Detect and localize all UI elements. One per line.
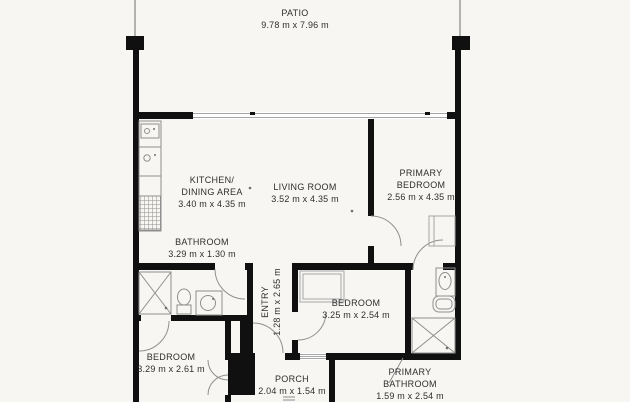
room-label-patio: PATIO 9.78 m x 7.96 m (261, 7, 329, 31)
room-name: BATHROOM (376, 378, 444, 390)
bathtub (433, 296, 455, 312)
room-name: KITCHEN/ (178, 174, 246, 186)
patio-window (193, 112, 447, 119)
room-name: PRIMARY (387, 167, 455, 179)
room-label-primary-bedroom: PRIMARY BEDROOM 2.56 m x 4.35 m (387, 167, 455, 203)
porch-step-marks (283, 397, 295, 400)
vanity-sink (196, 291, 222, 315)
room-name: PATIO (261, 7, 329, 19)
room-label-bedroom-lower: BEDROOM 3.29 m x 2.61 m (137, 351, 205, 375)
floor-plan: PATIO 9.78 m x 7.96 m KITCHEN/ DINING AR… (0, 0, 630, 402)
room-name: BEDROOM (387, 179, 455, 191)
room-dims: 1.59 m x 2.54 m (376, 390, 444, 402)
room-dims: 3.29 m x 2.61 m (137, 363, 205, 375)
shower (139, 272, 171, 314)
room-label-kitchen-dining: KITCHEN/ DINING AREA 3.40 m x 4.35 m (178, 174, 246, 210)
room-dims: 9.78 m x 7.96 m (261, 19, 329, 31)
room-dims: 3.52 m x 4.35 m (271, 193, 339, 205)
kitchen-counter (139, 121, 161, 231)
room-label-bedroom-middle: BEDROOM 3.25 m x 2.54 m (322, 297, 390, 321)
room-label-living-room: LIVING ROOM 3.52 m x 4.35 m (271, 181, 339, 205)
room-dims: 3.29 m x 1.30 m (168, 248, 236, 260)
room-label-primary-bathroom: PRIMARY BATHROOM 1.59 m x 2.54 m (376, 366, 444, 402)
room-dims: 2.04 m x 1.54 m (258, 385, 326, 397)
room-label-porch: PORCH 2.04 m x 1.54 m (258, 373, 326, 397)
room-dims: 3.40 m x 4.35 m (178, 198, 246, 210)
room-name: BATHROOM (168, 236, 236, 248)
room-label-bathroom: BATHROOM 3.29 m x 1.30 m (168, 236, 236, 260)
room-dims: 1.28 m x 2.65 m (271, 268, 283, 336)
room-name: DINING AREA (178, 186, 246, 198)
room-name: BEDROOM (137, 351, 205, 363)
toilet (177, 289, 191, 314)
room-dims: 3.25 m x 2.54 m (322, 309, 390, 321)
room-label-entry: ENTRY 1.28 m x 2.65 m (259, 268, 283, 336)
room-name: PRIMARY (376, 366, 444, 378)
room-name: PORCH (258, 373, 326, 385)
room-dims: 2.56 m x 4.35 m (387, 191, 455, 203)
bedroom-window (300, 353, 326, 360)
room-name: LIVING ROOM (271, 181, 339, 193)
room-name: BEDROOM (322, 297, 390, 309)
primary-shower (412, 318, 455, 353)
room-name: ENTRY (259, 268, 271, 336)
primary-sink (436, 268, 455, 296)
